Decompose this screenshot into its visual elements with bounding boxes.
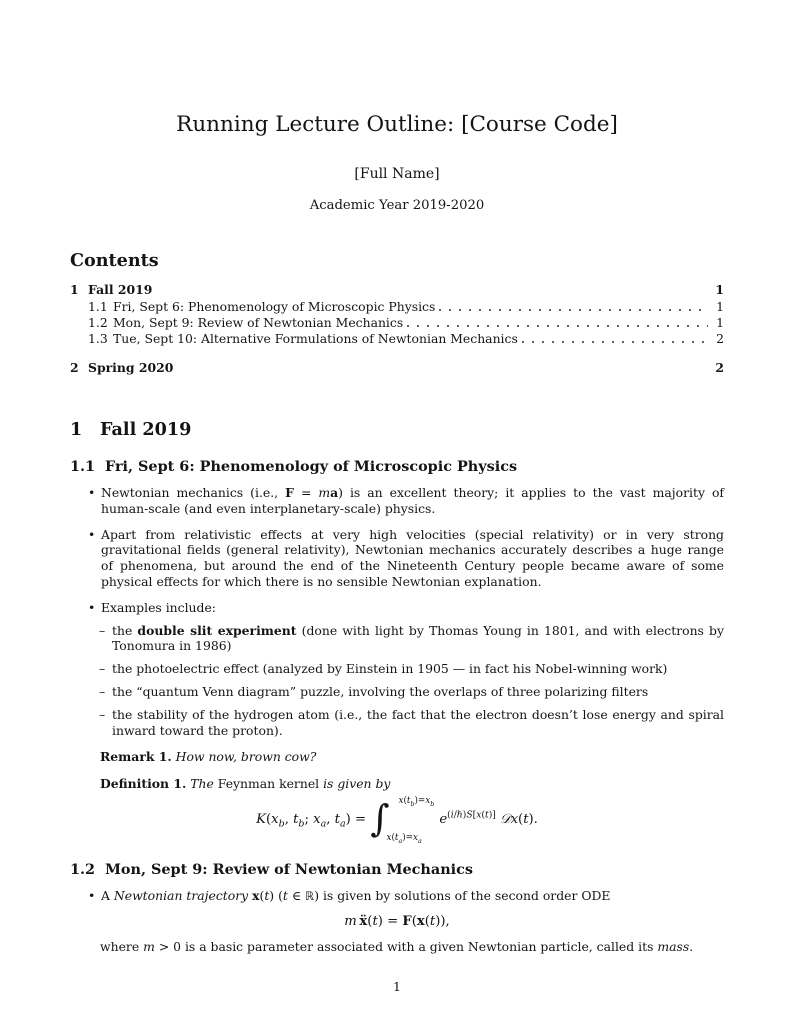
toc-number: 1 xyxy=(70,282,88,298)
toc-dot-leader xyxy=(407,315,708,331)
toc-entry-section-2: 2 Spring 2020 2 xyxy=(70,360,724,376)
subsection-title: Fri, Sept 6: Phenomenology of Microscopi… xyxy=(105,458,517,475)
examples-list: – the double slit experiment (done with … xyxy=(70,623,724,739)
definition-text: The Feynman kernel is given by xyxy=(190,776,390,791)
item-text: the photoelectric effect (analyzed by Ei… xyxy=(112,661,724,677)
subsection-number: 1.2 xyxy=(70,862,105,878)
list-item: • A Newtonian trajectory x(t) (t ∈ ℝ) is… xyxy=(88,888,724,905)
academic-year: Academic Year 2019-2020 xyxy=(70,198,724,214)
feynman-kernel-formula: K(xb, tb; xa, ta) = ∫x(tb)=xbx(ta)=xae(i… xyxy=(70,796,724,843)
item-text: the “quantum Venn diagram” puzzle, invol… xyxy=(112,684,724,700)
toc-page-number: 2 xyxy=(714,331,724,347)
remark-text: How now, brown cow? xyxy=(176,749,317,764)
item-text: the double slit experiment (done with li… xyxy=(112,623,724,655)
toc-title: Mon, Sept 9: Review of Newtonian Mechani… xyxy=(113,315,407,331)
author-name: [Full Name] xyxy=(70,167,724,183)
mass-paragraph: where m > 0 is a basic parameter associa… xyxy=(100,939,724,955)
toc-number: 1.1 xyxy=(88,299,113,315)
remark-paragraph: Remark 1. How now, brown cow? xyxy=(100,749,724,765)
toc-title: Tue, Sept 10: Alternative Formulations o… xyxy=(113,331,522,347)
list-item: – the double slit experiment (done with … xyxy=(99,623,724,655)
toc-entry-1-2: 1.2 Mon, Sept 9: Review of Newtonian Mec… xyxy=(70,315,724,331)
bullet-list: • Newtonian mechanics (i.e., F = ma) is … xyxy=(70,485,724,616)
item-text: Newtonian mechanics (i.e., F = ma) is an… xyxy=(101,485,724,517)
section-number: 1 xyxy=(70,422,100,438)
document-title: Running Lecture Outline: [Course Code] xyxy=(70,112,724,138)
dash-marker: – xyxy=(99,707,112,739)
contents-heading: Contents xyxy=(70,253,724,269)
item-text: A Newtonian trajectory x(t) (t ∈ ℝ) is g… xyxy=(101,888,724,905)
item-text: Apart from relativistic effects at very … xyxy=(101,527,724,590)
list-item: – the stability of the hydrogen atom (i.… xyxy=(99,707,724,739)
list-item: • Newtonian mechanics (i.e., F = ma) is … xyxy=(88,485,724,517)
dash-marker: – xyxy=(99,661,112,677)
bullet-list: • A Newtonian trajectory x(t) (t ∈ ℝ) is… xyxy=(70,888,724,905)
section-title: Fall 2019 xyxy=(100,419,191,440)
toc-page-number: 2 xyxy=(714,360,724,376)
bullet-marker: • xyxy=(88,600,101,616)
toc-dot-leader xyxy=(439,299,708,315)
item-text: the stability of the hydrogen atom (i.e.… xyxy=(112,707,724,739)
dash-marker: – xyxy=(99,684,112,700)
page-number-footer: 1 xyxy=(0,979,794,995)
bullet-marker: • xyxy=(88,485,101,517)
toc-dot-leader xyxy=(522,331,708,347)
bullet-marker: • xyxy=(88,888,101,905)
dash-marker: – xyxy=(99,623,112,655)
document-page: Running Lecture Outline: [Course Code] [… xyxy=(0,0,794,1028)
item-text: Examples include: xyxy=(101,600,724,616)
toc-entry-section-1: 1 Fall 2019 1 xyxy=(70,282,724,298)
toc-page-number: 1 xyxy=(714,299,724,315)
toc-entry-1-1: 1.1 Fri, Sept 6: Phenomenology of Micros… xyxy=(70,299,724,315)
list-item: – the photoelectric effect (analyzed by … xyxy=(99,661,724,677)
subsection-1-2-heading: 1.2Mon, Sept 9: Review of Newtonian Mech… xyxy=(70,862,724,878)
list-item: • Examples include: xyxy=(88,600,724,616)
toc-page-number: 1 xyxy=(714,282,724,298)
list-item: • Apart from relativistic effects at ver… xyxy=(88,527,724,590)
toc-number: 1.2 xyxy=(88,315,113,331)
toc-entry-1-3: 1.3 Tue, Sept 10: Alternative Formulatio… xyxy=(70,331,724,347)
definition-label: Definition 1. xyxy=(100,776,186,791)
toc-number: 2 xyxy=(70,360,88,376)
remark-label: Remark 1. xyxy=(100,749,172,764)
toc-title: Fri, Sept 6: Phenomenology of Microscopi… xyxy=(113,299,439,315)
toc-number: 1.3 xyxy=(88,331,113,347)
subsection-1-1-heading: 1.1Fri, Sept 6: Phenomenology of Microsc… xyxy=(70,459,724,475)
subsection-title: Mon, Sept 9: Review of Newtonian Mechani… xyxy=(105,861,473,878)
toc-title: Fall 2019 xyxy=(88,282,156,298)
bullet-marker: • xyxy=(88,527,101,590)
toc-page-number: 1 xyxy=(714,315,724,331)
subsection-number: 1.1 xyxy=(70,459,105,475)
list-item: – the “quantum Venn diagram” puzzle, inv… xyxy=(99,684,724,700)
newton-ode-formula: m ẍ(t) = F(x(t)), xyxy=(70,914,724,930)
section-1-heading: 1Fall 2019 xyxy=(70,422,724,438)
definition-paragraph: Definition 1. The Feynman kernel is give… xyxy=(100,776,724,792)
table-of-contents: 1 Fall 2019 1 1.1 Fri, Sept 6: Phenomeno… xyxy=(70,282,724,375)
toc-title: Spring 2020 xyxy=(88,360,177,376)
